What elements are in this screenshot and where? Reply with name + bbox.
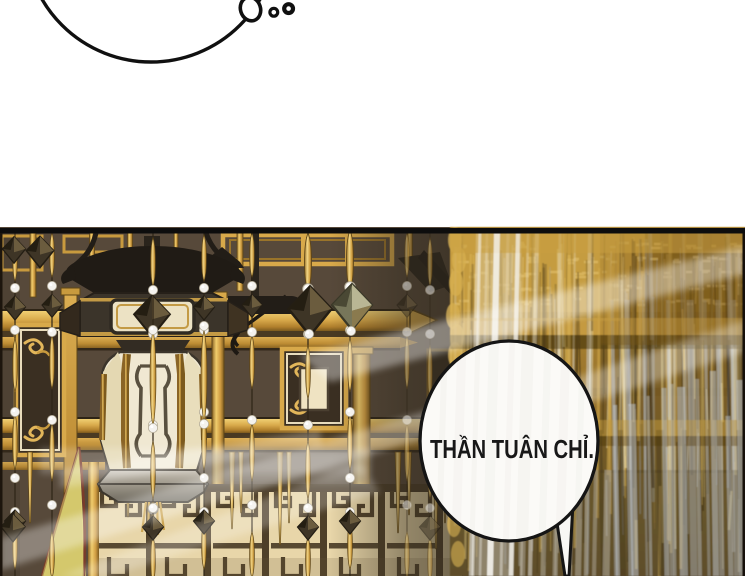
svg-text:THẦN TUÂN CHỈ.: THẦN TUÂN CHỈ. [430,434,594,464]
